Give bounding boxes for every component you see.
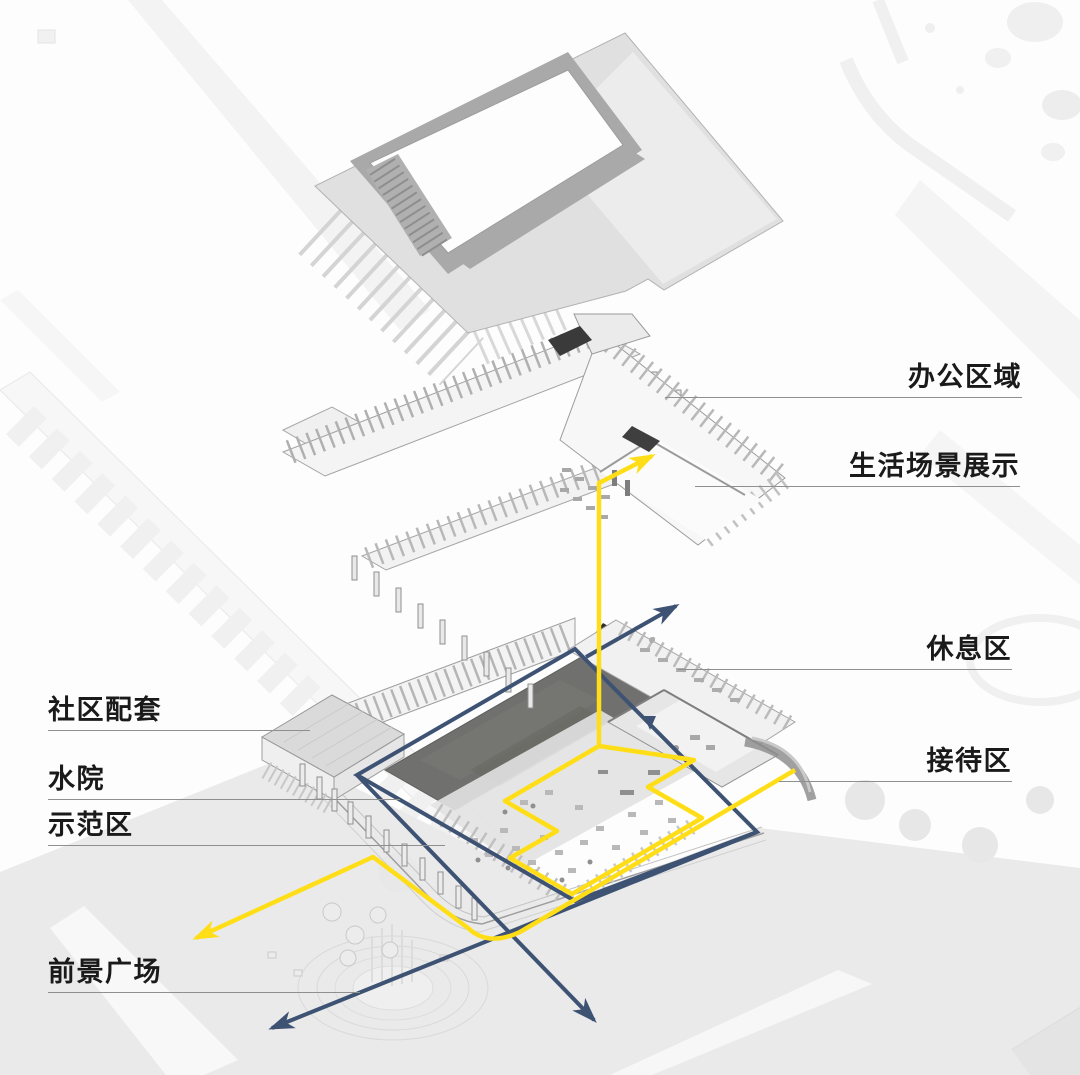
- exploded-axonometric-page: 办公区域 生活场景展示 休息区 接待区 社区配套 水院 示范区 前景广场: [0, 0, 1080, 1075]
- label-community-facilities: 社区配套: [48, 695, 310, 731]
- label-demonstration-area: 示范区: [48, 810, 445, 846]
- label-office-area: 办公区域: [665, 362, 1022, 398]
- label-life-scene-display: 生活场景展示: [695, 451, 1020, 487]
- label-water-courtyard: 水院: [48, 764, 400, 800]
- label-reception-area: 接待区: [779, 746, 1012, 782]
- label-rest-area: 休息区: [678, 634, 1012, 670]
- exploded-axon-drawing: [0, 0, 1080, 1075]
- label-foreground-plaza: 前景广场: [48, 957, 360, 993]
